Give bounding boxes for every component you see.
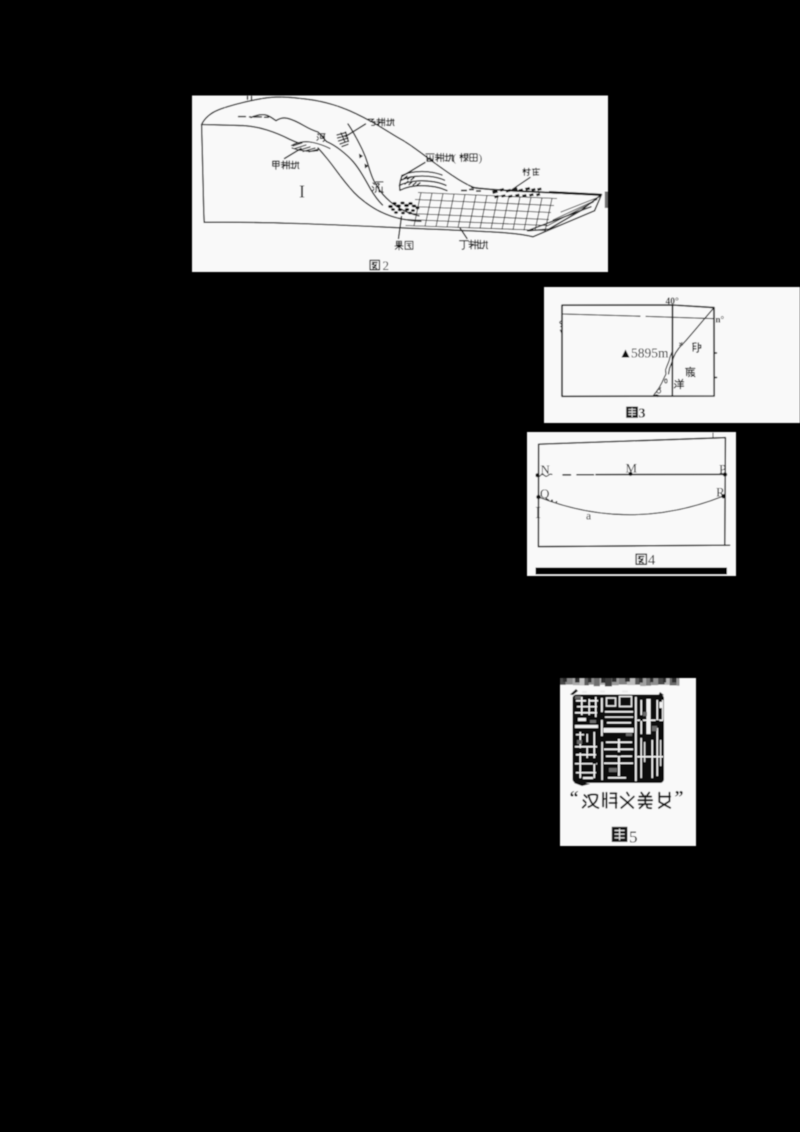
svg-text:40°: 40° [666, 296, 680, 307]
svg-text:2: 2 [383, 258, 390, 273]
svg-text:a: a [586, 511, 591, 523]
svg-text:”: ” [675, 787, 684, 807]
svg-text:R: R [716, 485, 725, 500]
svg-text:(: ( [453, 153, 457, 165]
svg-text:n°: n° [716, 315, 725, 325]
svg-text:N: N [541, 462, 551, 477]
svg-text:3: 3 [639, 406, 646, 421]
svg-text:“: “ [570, 787, 579, 807]
svg-text:5895m: 5895m [631, 346, 669, 361]
svg-text:I: I [535, 503, 541, 522]
svg-text:): ) [479, 153, 483, 165]
svg-text:M: M [626, 460, 638, 475]
svg-text:P: P [719, 462, 726, 477]
svg-text:I: I [299, 182, 305, 202]
svg-text:5: 5 [629, 828, 638, 847]
svg-text:4: 4 [648, 553, 656, 569]
svg-text:Q: Q [540, 486, 550, 501]
